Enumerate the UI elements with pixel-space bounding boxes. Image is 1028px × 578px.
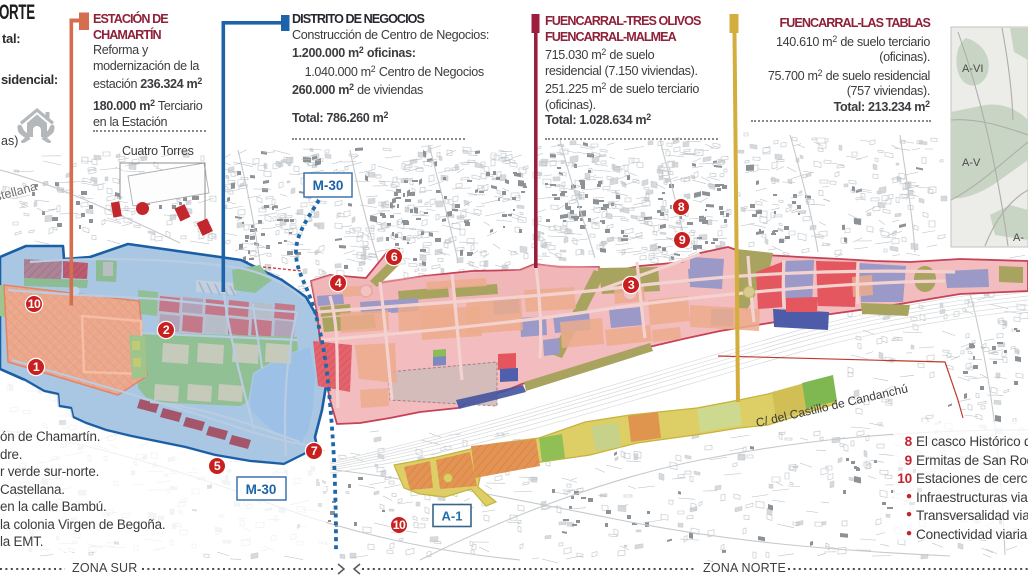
svg-text:6: 6 (391, 250, 398, 264)
svg-text:A-1: A-1 (442, 509, 463, 524)
svg-text:8: 8 (678, 200, 685, 214)
svg-text:1: 1 (33, 360, 40, 374)
svg-text:10: 10 (28, 297, 41, 311)
svg-text:A-: A- (1013, 232, 1024, 244)
svg-text:3: 3 (628, 278, 635, 292)
svg-text:4: 4 (335, 276, 342, 290)
svg-text:M-30: M-30 (246, 482, 277, 497)
svg-text:A-VI: A-VI (962, 63, 983, 75)
svg-text:5: 5 (214, 459, 221, 473)
svg-text:M-30: M-30 (313, 178, 344, 193)
svg-text:9: 9 (679, 233, 686, 247)
svg-text:stellana: stellana (0, 179, 39, 204)
svg-text:A-V: A-V (962, 157, 981, 169)
svg-text:2: 2 (163, 323, 170, 337)
svg-text:10: 10 (393, 518, 406, 532)
svg-text:7: 7 (311, 444, 318, 458)
